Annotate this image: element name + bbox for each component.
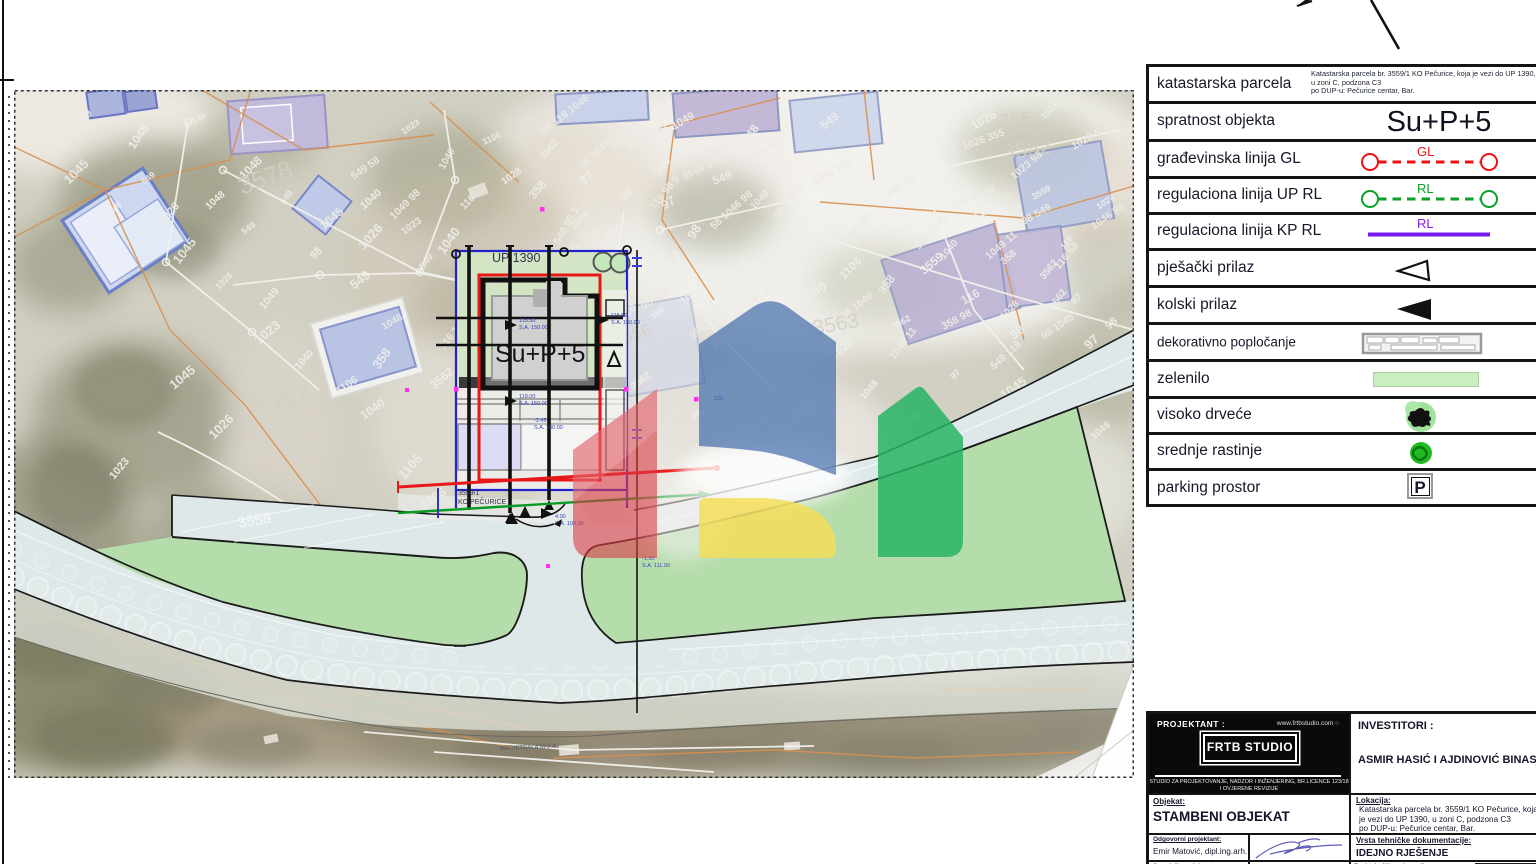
svg-text:-2.45: -2.45	[534, 418, 547, 424]
svg-text:355: 355	[998, 108, 1033, 133]
svg-text:S.A. 100.00: S.A. 100.00	[534, 425, 563, 431]
svg-text:115.50: 115.50	[611, 313, 627, 319]
svg-text:GL: GL	[1417, 144, 1434, 159]
svg-text:RL: RL	[1417, 181, 1434, 196]
svg-text:UP 1390: UP 1390	[492, 251, 540, 265]
svg-text:RL: RL	[1417, 216, 1434, 231]
svg-text:3559/1: 3559/1	[458, 490, 480, 497]
svg-text:115.50: 115.50	[519, 318, 535, 324]
svg-text:S.A. 111.00: S.A. 111.00	[642, 563, 670, 569]
svg-text:119.00: 119.00	[519, 394, 535, 400]
svg-text:S.A. 150.00: S.A. 150.00	[519, 325, 548, 331]
svg-text:4.00: 4.00	[555, 514, 566, 520]
svg-text:S.A. 150.00: S.A. 150.00	[611, 320, 640, 326]
svg-text:KO PEČURICE: KO PEČURICE	[458, 497, 507, 506]
svg-text:S.A. 150.00: S.A. 150.00	[519, 401, 548, 407]
